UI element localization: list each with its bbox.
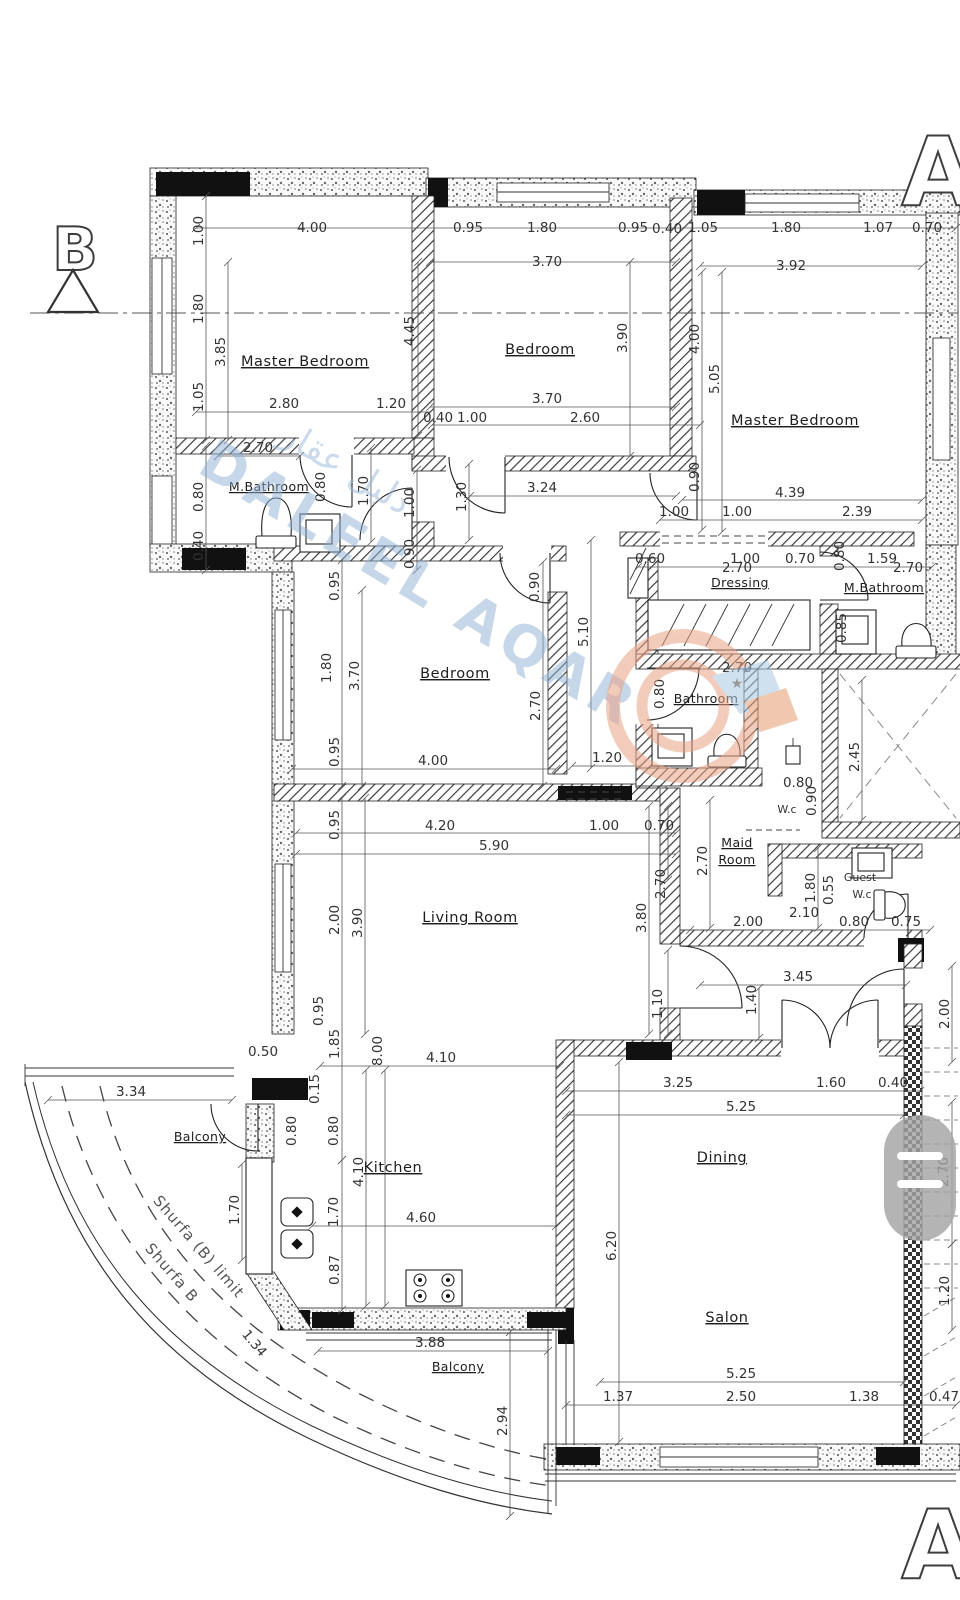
dim-label: 2.70 [893,560,923,576]
page: { "section_markers": { "b": "B", "a_top"… [0,0,960,1600]
dim-label: 5.90 [479,838,509,854]
toilet [896,646,936,658]
dim-label: 1.20 [592,750,622,766]
dim-label: 0.70 [644,818,674,834]
dim-label: 1.80 [771,220,801,236]
room-label-guest-1: Guest [844,871,877,884]
menu-pill-background[interactable] [884,1115,956,1241]
dim-label: 2.70 [695,846,711,876]
dim-label: 1.00 [457,410,487,426]
dim-label: 5.25 [726,1366,756,1382]
menu-pill-button[interactable] [884,1115,956,1241]
watermark-brand-text: DALEEL AQAR [188,427,651,741]
dim-label: 1.80 [803,873,819,903]
dim-label: 4.00 [297,220,327,236]
dim-label: 1.20 [937,1276,953,1306]
dim-label: 3.70 [347,661,363,691]
dim-label: 0.95 [618,220,648,236]
dim-label: 2.39 [842,504,872,520]
dim-label: 0.95 [453,220,483,236]
dim-label: 2.45 [847,742,863,772]
dim-label: 1.37 [603,1389,633,1405]
dim-label: 0.80 [326,1116,342,1146]
dim-label: 3.34 [116,1084,146,1100]
room-label-m-bathroom-right: M.Bathroom [844,580,924,595]
room-label-balcony-bottom: Balcony [432,1359,485,1374]
dim-label: 3.85 [213,337,229,367]
room-label-dining: Dining [697,1150,747,1166]
dim-label: 3.45 [783,969,813,985]
section-markers: B A A [48,118,960,1600]
room-label-maid-2: Room [718,852,755,867]
dim-label: 4.20 [425,818,455,834]
dim-label: 0.85 [834,613,850,643]
section-marker-a-top: A [901,118,960,228]
menu-bar-icon [897,1152,943,1160]
dim-label: 0.75 [891,914,921,930]
dim-label: 2.70 [528,691,544,721]
dim-label: 0.95 [327,571,343,601]
dim-label: 0.90 [527,572,543,602]
section-marker-a-bottom: A [901,1491,960,1600]
dim-label: 1.80 [527,220,557,236]
dim-label: 3.24 [527,480,557,496]
room-label-wc: W.c [777,803,796,816]
dim-label: 1.70 [326,1197,342,1227]
dim-label: 0.90 [804,786,820,816]
dim-label: 0.60 [635,551,665,567]
room-label-kitchen: Kitchen [364,1160,423,1176]
dim-label: 3.70 [532,391,562,407]
door-arc [847,969,904,1026]
dim-label: 2.50 [726,1389,756,1405]
dim-label: 2.80 [269,396,299,412]
dim-label: 0.80 [832,541,848,571]
menu-bar-icon [897,1180,943,1188]
column [156,172,250,196]
toilet [874,890,885,920]
dim-label: 0.80 [839,914,869,930]
dim-label: 1.00 [722,504,752,520]
dim-label: 0.50 [248,1044,278,1060]
dim-label: 1.34 [238,1327,270,1360]
dim-label: 1.05 [688,220,718,236]
dim-label: 0.95 [327,737,343,767]
dim-label: 1.30 [454,482,470,512]
dim-label: 1.70 [227,1195,243,1225]
dim-label: 1.07 [863,220,893,236]
dim-label: 1.20 [376,396,406,412]
dim-label: 1.00 [659,504,689,520]
dim-label: 2.94 [495,1406,511,1436]
stove [406,1270,462,1306]
window [933,338,950,460]
room-label-bedroom-middle: Bedroom [420,666,490,682]
dim-label: 3.25 [663,1075,693,1091]
logo-star-icon: ★ [731,676,744,692]
sink [786,746,800,764]
dim-label: 5.25 [726,1099,756,1115]
dim-label: 0.70 [785,551,815,567]
dim-label: 1.05 [191,382,207,412]
room-label-salon: Salon [705,1310,748,1326]
dim-label: 0.87 [327,1255,343,1285]
dim-label: 4.60 [406,1210,436,1226]
dim-label: 2.70 [722,560,752,576]
dim-label: 2.00 [327,905,343,935]
dim-label: 2.00 [937,999,953,1029]
dim-label: 2.60 [570,410,600,426]
dim-label: 1.60 [816,1075,846,1091]
dim-label: 4.45 [402,316,418,346]
dim-label: 0.47 [929,1389,959,1405]
dim-label: 0.40 [652,221,682,237]
window [497,183,609,202]
room-label-guest-2: W.c [852,888,871,901]
dim-label: 1.00 [191,216,207,246]
dim-label: 3.88 [415,1335,445,1351]
dim-label: 3.80 [634,903,650,933]
counter [246,1158,272,1274]
stairs [924,1048,958,1436]
dim-label: 1.38 [849,1389,879,1405]
dim-label: 2.10 [789,905,819,921]
dim-label: 3.92 [776,258,806,274]
dim-label: 0.90 [687,462,703,492]
window [152,476,172,546]
dim-label: 0.80 [284,1116,300,1146]
dim-label: 4.10 [426,1050,456,1066]
room-label-balcony-left: Balcony [174,1129,227,1144]
room-label-dressing: Dressing [711,575,769,590]
dim-label: 2.70 [653,869,669,899]
dim-label: 0.40 [423,410,453,426]
dim-label: 1.80 [191,294,207,324]
dim-label: 1.40 [744,985,760,1015]
dim-label: 3.90 [615,323,631,353]
dim-label: 0.40 [878,1075,908,1091]
dim-label: 0.15 [307,1074,323,1104]
room-label-master-bedroom-left: Master Bedroom [241,354,369,370]
floor-plan-canvas: 4.000.951.800.950.401.051.801.070.703.70… [0,0,960,1600]
dim-label: 5.05 [707,364,723,394]
dim-label: 1.10 [650,989,666,1019]
room-label-maid-1: Maid [721,835,752,850]
dim-label: 0.40 [191,531,207,561]
room-label-master-bedroom-right: Master Bedroom [731,413,859,429]
dim-label: 4.00 [687,324,703,354]
door-arc [680,946,742,1008]
dim-label: 1.85 [327,1029,343,1059]
room-label-living-room: Living Room [422,910,518,926]
dim-label: 1.80 [319,653,335,683]
dim-label: 3.90 [350,908,366,938]
dim-label: 1.00 [589,818,619,834]
dim-label: 8.00 [370,1036,386,1066]
dim-label: 0.95 [311,996,327,1026]
dim-label: 3.70 [532,254,562,270]
dim-label: 0.55 [821,875,837,905]
dim-label: 4.39 [775,485,805,501]
dim-label: 4.00 [418,753,448,769]
dim-label: 0.95 [327,810,343,840]
floor-plan-svg: 4.000.951.800.950.401.051.801.070.703.70… [0,0,960,1600]
room-label-bedroom-top: Bedroom [505,342,575,358]
dim-label: 6.20 [604,1231,620,1261]
dim-label: 2.00 [733,914,763,930]
